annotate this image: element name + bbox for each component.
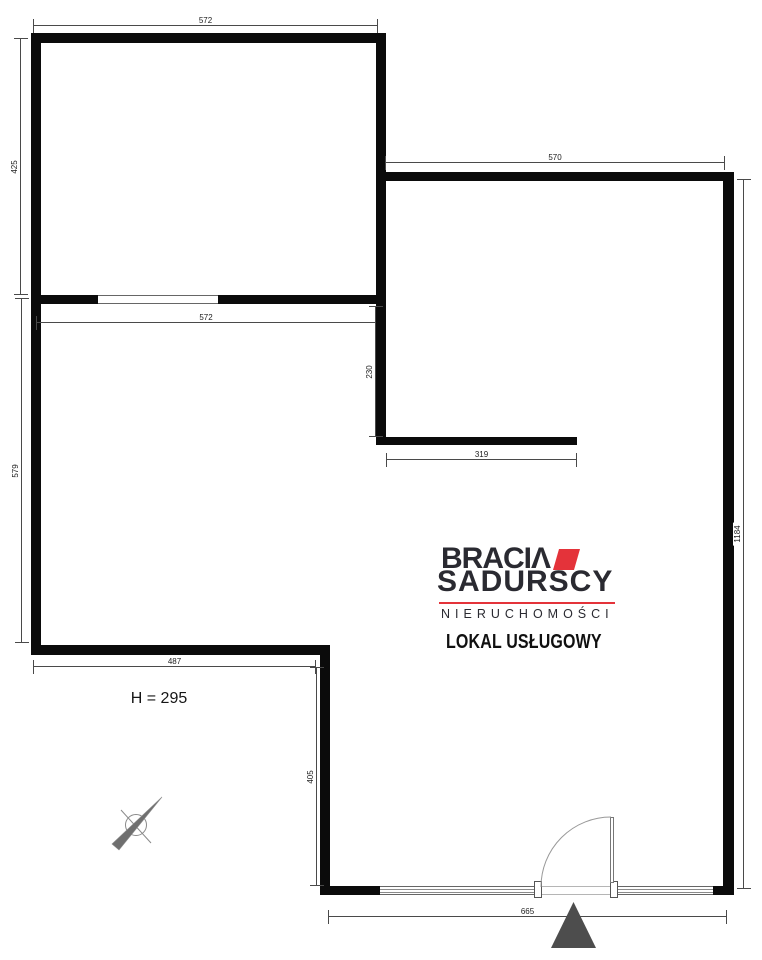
door-swing-arc	[541, 817, 611, 887]
floor-plan-canvas: 572 425 570 1184 572 230 319 579 487 405…	[0, 0, 762, 960]
north-arrow-needle	[112, 797, 162, 850]
logo-underline	[439, 602, 615, 604]
north-arrow-icon	[112, 797, 162, 850]
logo-brand-line2: SADURSCY	[437, 567, 613, 597]
property-type-label: LOKAL USŁUGOWY	[446, 632, 602, 652]
entrance-marker-triangle	[551, 902, 596, 948]
ceiling-height-label: H = 295	[109, 691, 209, 707]
logo-tagline: NIERUCHOMOŚCI	[441, 607, 614, 621]
plan-symbols-layer	[0, 0, 762, 960]
